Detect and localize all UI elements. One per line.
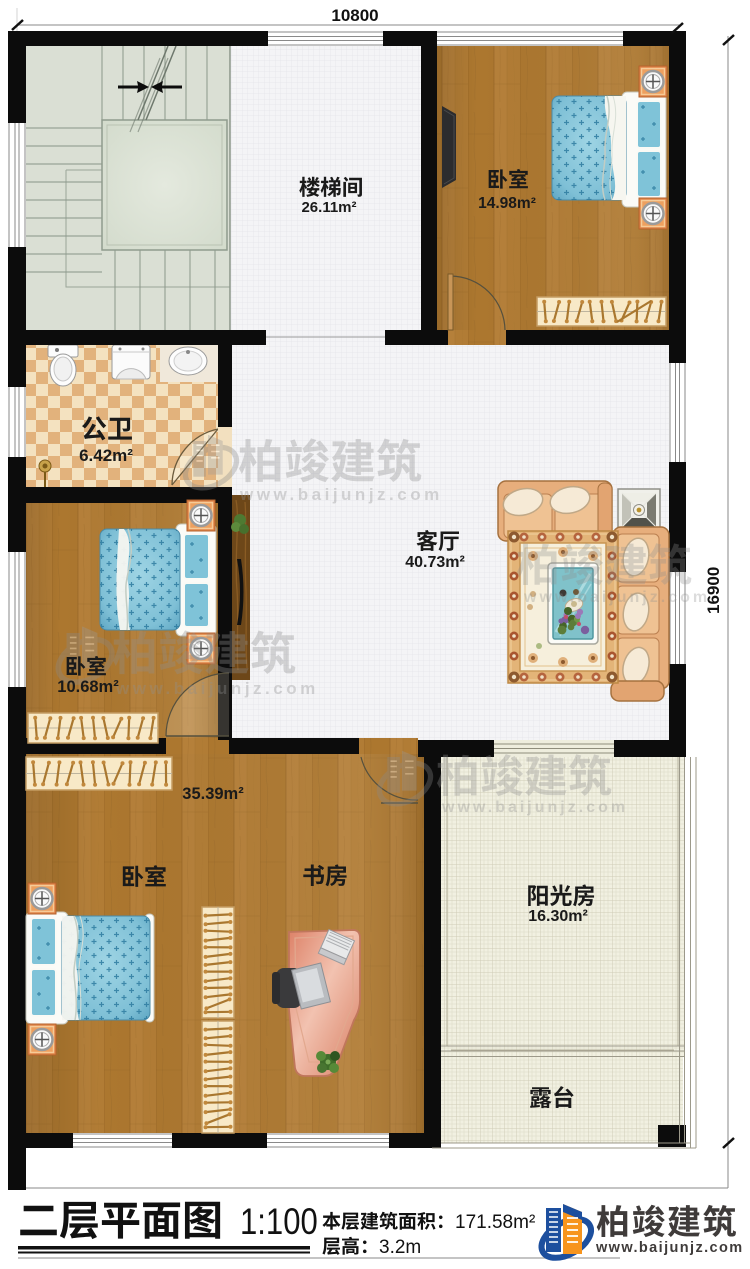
svg-text:16.30m²: 16.30m² xyxy=(528,908,588,925)
svg-text:14.98m²: 14.98m² xyxy=(478,195,536,212)
svg-text:www.baijunjz.com: www.baijunjz.com xyxy=(441,799,628,816)
svg-text:www.baijunjz.com: www.baijunjz.com xyxy=(595,1240,744,1256)
svg-text:16900: 16900 xyxy=(704,567,723,614)
svg-text:10.68m²: 10.68m² xyxy=(57,678,119,696)
svg-text:www.baijunjz.com: www.baijunjz.com xyxy=(239,485,443,504)
svg-text:171.58m²: 171.58m² xyxy=(455,1212,535,1233)
svg-text:6.42m²: 6.42m² xyxy=(79,446,133,465)
svg-text:1:100: 1:100 xyxy=(240,1202,318,1243)
svg-text:www.baijunjz.com: www.baijunjz.com xyxy=(115,679,319,698)
svg-text:www.baijunjz.com: www.baijunjz.com xyxy=(523,589,710,606)
svg-text:40.73m²: 40.73m² xyxy=(405,554,465,571)
svg-text:26.11m²: 26.11m² xyxy=(301,199,356,216)
svg-text:3.2m: 3.2m xyxy=(379,1237,421,1258)
svg-text:35.39m²: 35.39m² xyxy=(182,785,244,803)
svg-text:10800: 10800 xyxy=(331,6,378,25)
